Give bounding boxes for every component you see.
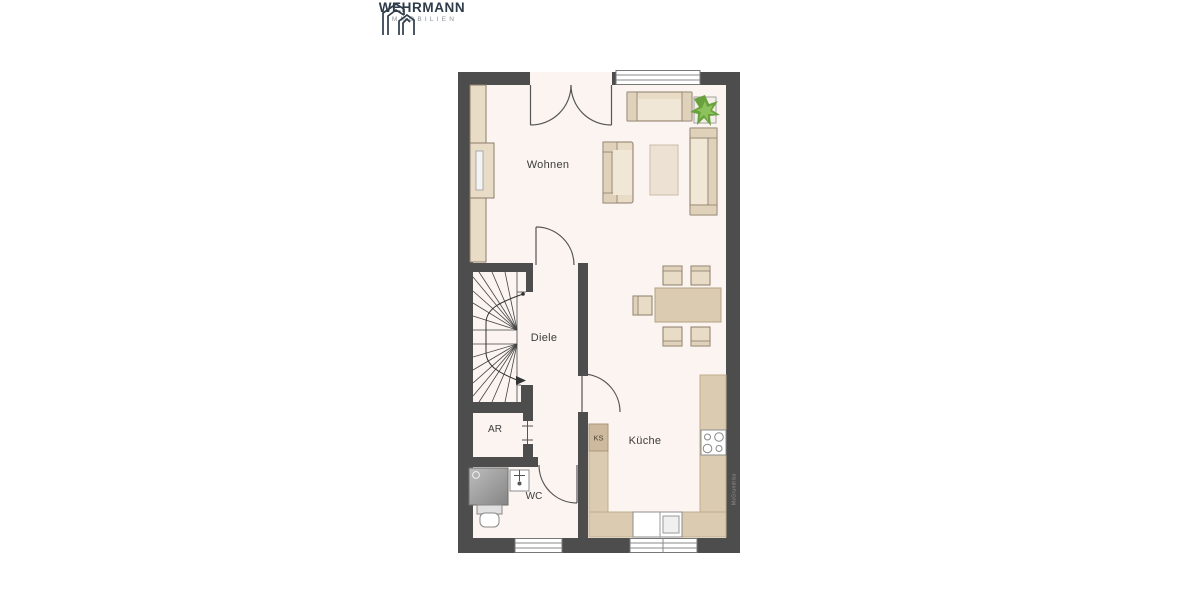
label-living: Wohnen <box>527 159 570 171</box>
shower <box>469 468 508 505</box>
label-wc: WC <box>526 491 543 502</box>
dining-table <box>655 288 721 322</box>
window-bottom-left <box>515 539 562 553</box>
window-bottom-right <box>630 539 697 553</box>
wc-sink <box>510 470 529 491</box>
tv-screen <box>476 151 483 190</box>
coffee-table <box>650 145 678 195</box>
cooktop <box>701 430 726 455</box>
entry-door-opening <box>530 72 612 85</box>
kitchen-sink <box>633 512 682 537</box>
label-hall: Diele <box>531 332 558 344</box>
label-fridge: KS <box>593 434 603 443</box>
floorplan-drawing: Wohnen Diele AR WC Küche KS McGrundriss <box>0 0 1200 600</box>
toilet <box>477 505 502 527</box>
label-kitchen: Küche <box>629 435 662 447</box>
sofa-right <box>690 128 717 215</box>
sofa-top <box>627 92 692 121</box>
loveseat-left <box>603 142 633 203</box>
floorplan-page: WEHRMANN IMMOBILIEN <box>0 0 1200 600</box>
watermark: McGrundriss <box>732 473 738 505</box>
tv-unit <box>470 143 494 198</box>
window-top <box>616 71 700 85</box>
plant <box>690 95 720 126</box>
label-storage: AR <box>488 424 502 435</box>
